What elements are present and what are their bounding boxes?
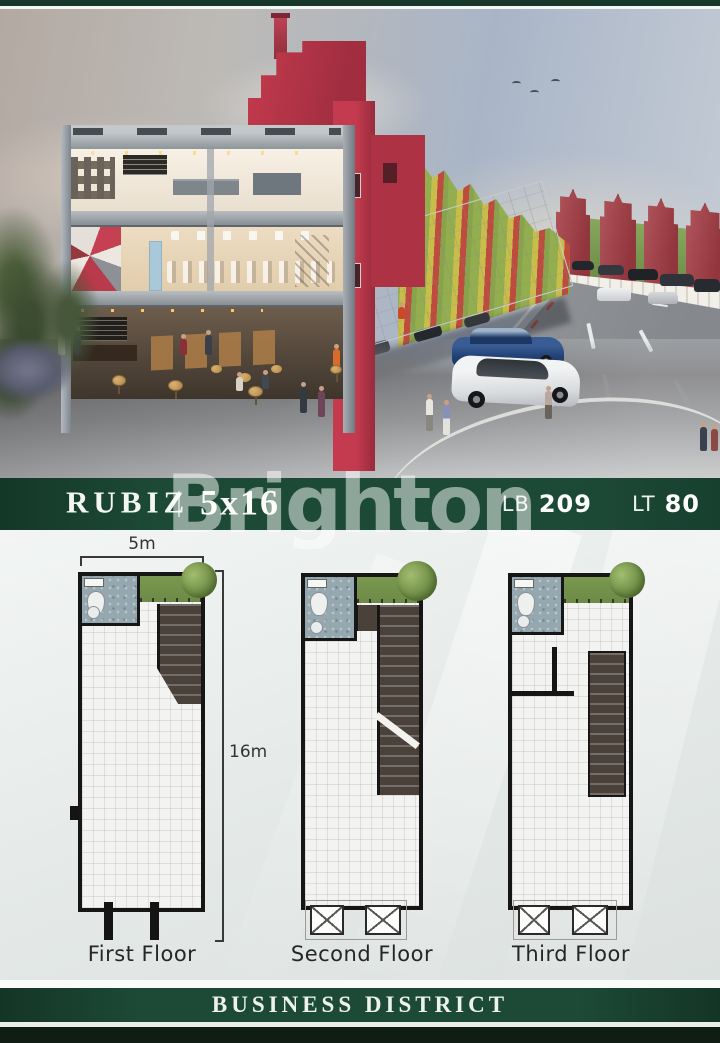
unit-size: 5x16	[200, 481, 280, 523]
bathroom	[305, 577, 357, 641]
side-door	[70, 806, 79, 820]
blue-door	[149, 241, 162, 291]
bird	[512, 81, 521, 86]
hero-render	[0, 9, 720, 478]
plan-tree	[397, 561, 437, 601]
bathroom	[512, 577, 564, 635]
floor-label-second: Second Floor	[272, 942, 452, 966]
floor-plan-first	[78, 572, 205, 912]
floor-plans-section: 5m 16m	[0, 530, 720, 980]
chimney	[274, 13, 287, 59]
pedestrian	[443, 405, 450, 435]
area-info: LB 209 LT 80	[502, 478, 700, 530]
pedestrian	[426, 399, 433, 431]
pedestrian	[545, 391, 552, 419]
pedestrian	[262, 375, 269, 389]
sink	[310, 621, 323, 634]
driving-car	[597, 288, 631, 301]
sink	[517, 615, 530, 628]
red-facade-wing	[371, 135, 425, 287]
building-column	[343, 125, 355, 433]
toilet	[310, 592, 328, 616]
entrance-pillar	[150, 902, 159, 940]
counter	[173, 179, 239, 195]
bird	[551, 79, 560, 84]
vanity	[84, 578, 104, 587]
outdoor-table	[112, 375, 126, 386]
section-gap	[0, 980, 720, 988]
pedestrian	[236, 377, 243, 391]
plan-tree	[181, 562, 217, 598]
land-area-value: 80	[665, 490, 700, 518]
floor-plan-third	[508, 573, 633, 910]
main-building-cross-section	[55, 39, 400, 471]
parked-car	[572, 261, 594, 270]
staircase	[588, 651, 626, 797]
string-lights	[81, 309, 263, 312]
partition-wall	[512, 691, 574, 696]
parked-car	[598, 265, 624, 275]
parked-car	[694, 279, 720, 292]
sink	[87, 606, 100, 619]
banner-divider	[178, 491, 180, 517]
counter	[253, 173, 301, 195]
building-column	[207, 149, 214, 291]
pedestrian	[318, 391, 325, 417]
canopy-column-box	[572, 905, 608, 935]
footer-banner: BUSINESS DISTRICT	[0, 988, 720, 1022]
title-banner: RUBIZ 5x16 LB 209 LT 80	[0, 478, 720, 530]
bird	[530, 90, 539, 95]
driving-car	[648, 292, 678, 304]
menu-board	[123, 155, 167, 175]
project-name: RUBIZ	[66, 485, 189, 521]
outdoor-table	[248, 386, 263, 397]
footer-title: BUSINESS DISTRICT	[212, 992, 508, 1018]
floor-label-third: Third Floor	[481, 942, 661, 966]
outdoor-table	[330, 365, 342, 374]
floor-plan-second	[301, 573, 423, 910]
car-wheel	[552, 387, 568, 403]
pedestrian	[180, 339, 187, 355]
pedestrian	[205, 335, 212, 355]
width-dimension-label: 5m	[80, 534, 204, 554]
stair-landing	[355, 605, 377, 631]
staircase	[377, 605, 419, 795]
floor-slab	[61, 291, 353, 307]
canopy-column-box	[310, 905, 344, 935]
pedestrian	[711, 429, 718, 451]
listing-flyer: RUBIZ 5x16 LB 209 LT 80 Brighton 5m 16m	[0, 0, 720, 1043]
bottom-dark-bar	[0, 1027, 720, 1043]
vanity	[514, 579, 534, 588]
plan-tree	[609, 562, 645, 598]
bathroom	[82, 576, 140, 626]
pedestrian	[398, 307, 405, 319]
parked-car	[660, 274, 694, 286]
canopy-column-box	[365, 905, 401, 935]
roof-slab	[61, 125, 353, 149]
height-dimension-label: 16m	[229, 742, 267, 762]
cafe-table	[271, 365, 282, 373]
vanity	[307, 579, 327, 588]
floor-label-first: First Floor	[52, 942, 232, 966]
outdoor-table	[168, 380, 183, 391]
roof-vents	[73, 128, 341, 135]
entrance-pillar	[104, 902, 113, 940]
canopy-column-box	[518, 905, 550, 935]
land-area-label: LT	[632, 492, 656, 516]
parked-car	[628, 269, 658, 280]
partition-wall	[552, 647, 557, 696]
width-dimension-line	[80, 556, 204, 558]
toilet	[517, 592, 535, 616]
height-dimension-line	[222, 570, 224, 942]
top-divider-line	[0, 6, 720, 9]
gallery-wall	[71, 157, 115, 199]
pedestrian	[300, 387, 307, 413]
building-area-value: 209	[539, 490, 592, 518]
cafe-table	[211, 365, 222, 373]
pedestrian	[700, 427, 707, 451]
building-area-label: LB	[502, 492, 530, 516]
interior-stair	[295, 235, 329, 287]
car-wheel	[468, 391, 485, 408]
